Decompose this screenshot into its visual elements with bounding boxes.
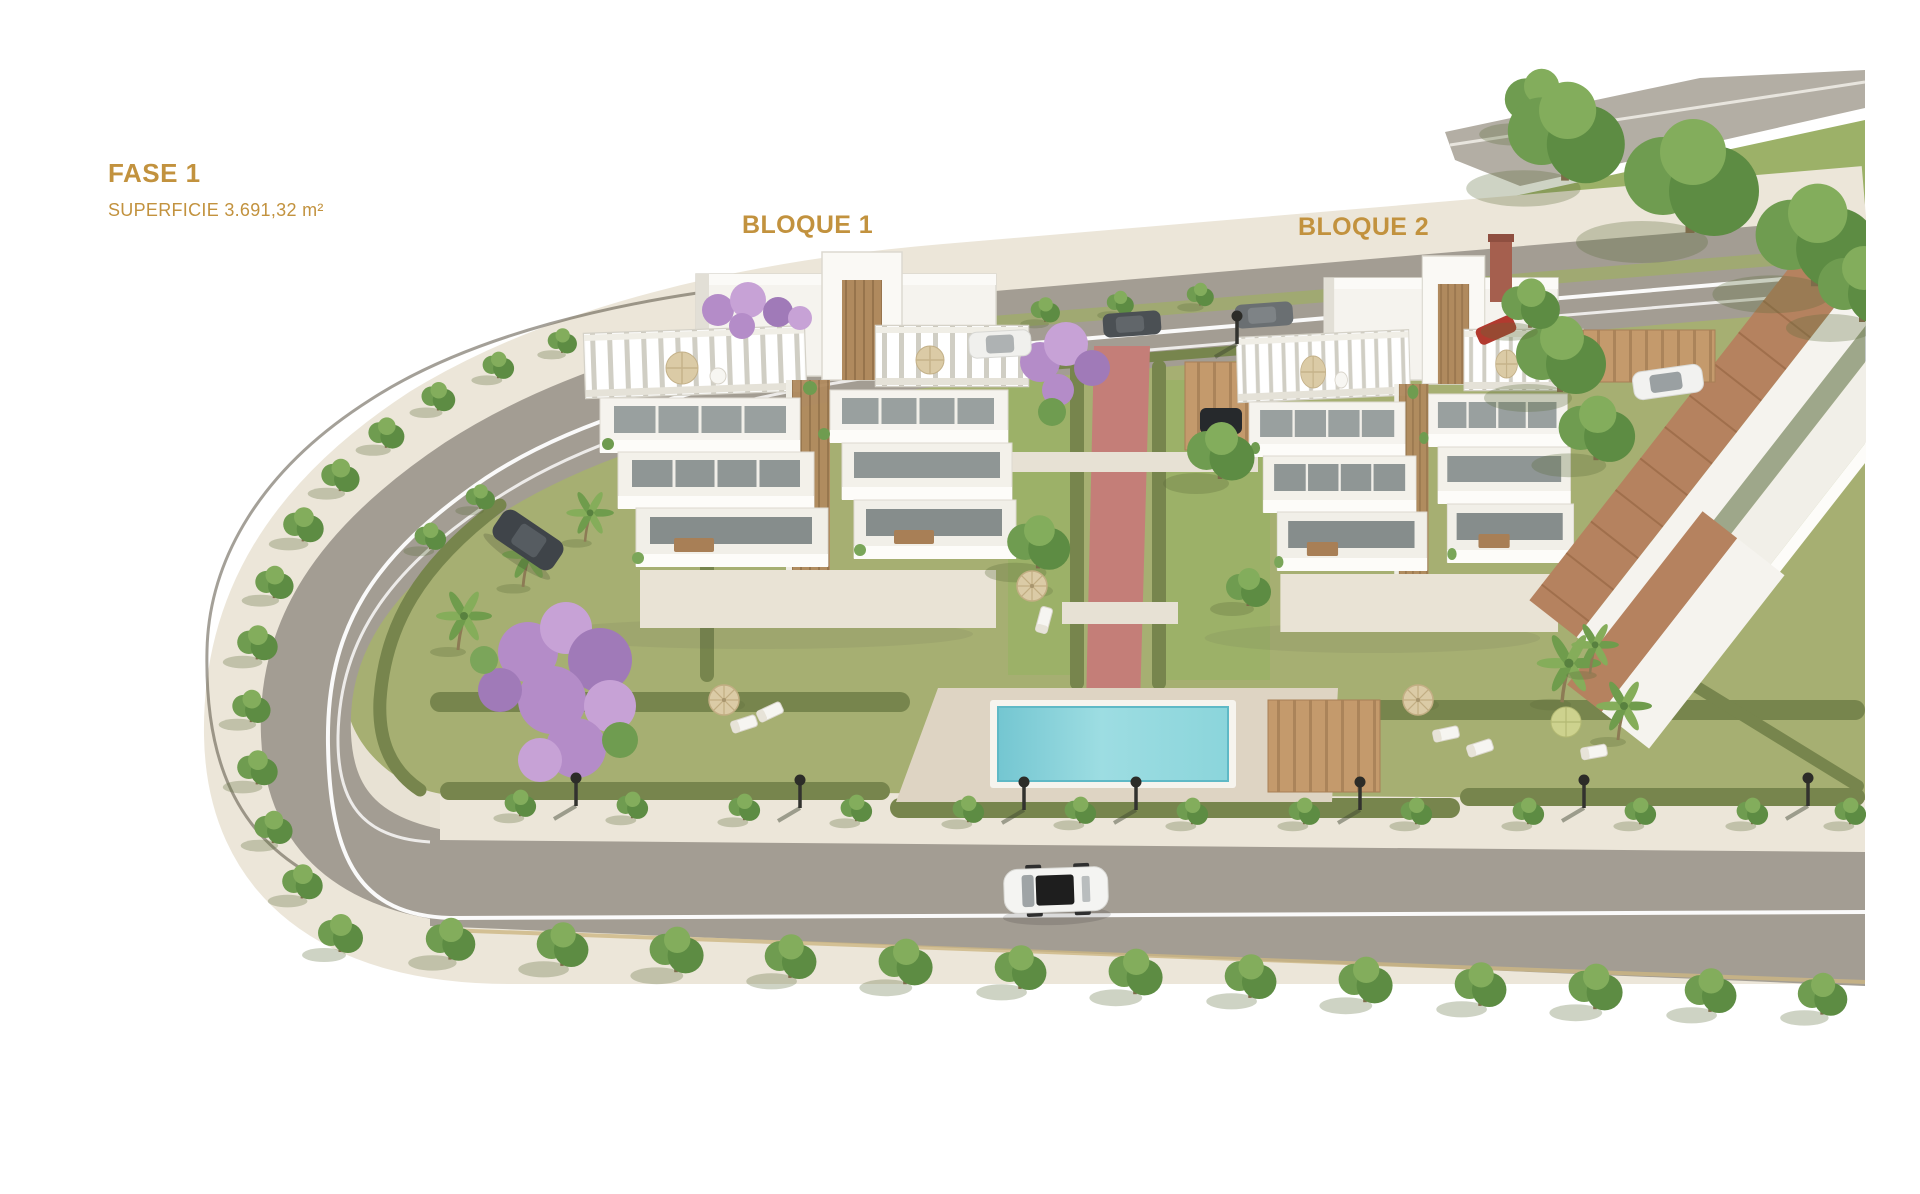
- right-margin: [1866, 0, 1920, 1194]
- surface-area-label: SUPERFICIE 3.691,32 m²: [108, 200, 324, 221]
- pool: [998, 707, 1228, 781]
- cross-walkway-lower: [1062, 602, 1178, 624]
- white-parked-car: [968, 329, 1031, 358]
- block-1-label: BLOQUE 1: [742, 211, 873, 240]
- site-plan-render: FASE 1 SUPERFICIE 3.691,32 m² BLOQUE 1 B…: [0, 0, 1920, 1194]
- red-pedestrian-path: [1086, 346, 1150, 706]
- white-car-bottom-road: [1001, 862, 1111, 927]
- phase-label: FASE 1: [108, 158, 201, 189]
- block-2-label: BLOQUE 2: [1298, 213, 1429, 242]
- render-scene: [0, 0, 1920, 1194]
